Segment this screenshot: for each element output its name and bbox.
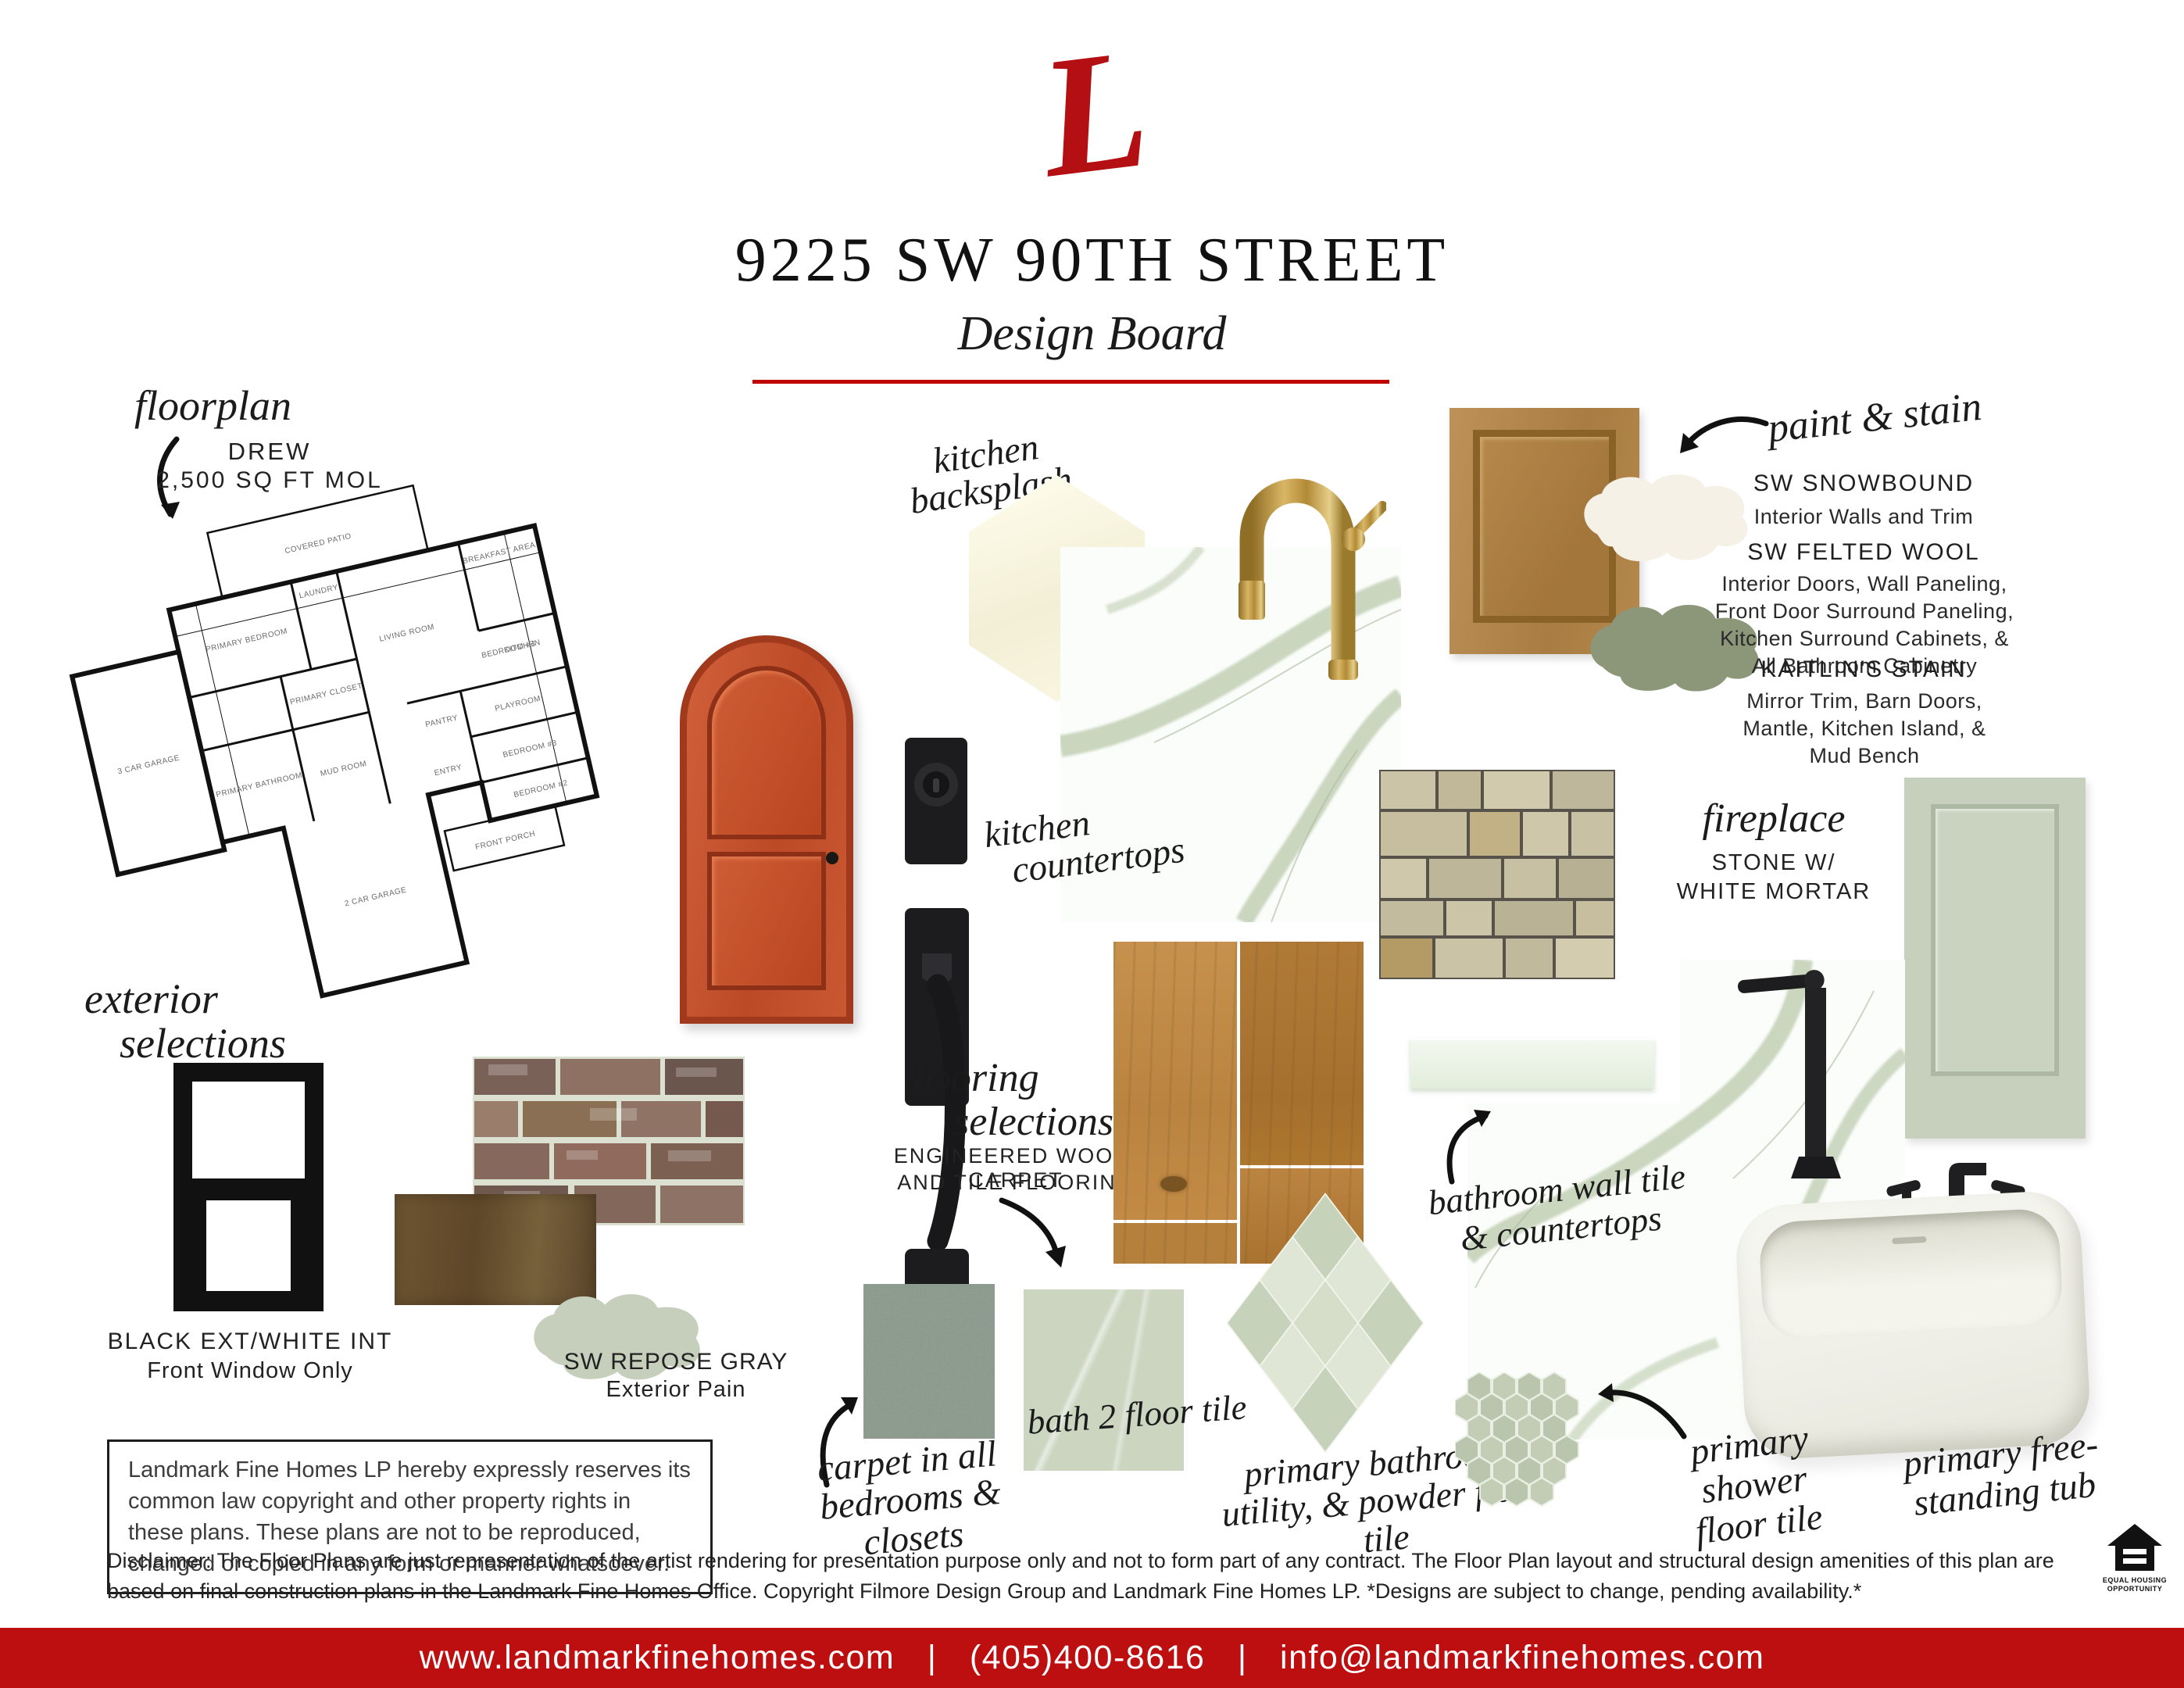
window-upper-pane (192, 1082, 305, 1178)
flooring-arrow-icon (994, 1194, 1071, 1271)
green-door-panel-image (1904, 778, 2086, 1139)
room-label: LIVING ROOM (378, 623, 435, 644)
paint-item-desc: Interior Walls and Trim (1707, 503, 2020, 531)
door-knob-icon (826, 852, 838, 864)
room-label: PRIMARY BATHROOM (215, 771, 303, 799)
fireplace-desc-line1: STONE W/ (1680, 850, 1868, 876)
footer-email: info@landmarkfinehomes.com (1280, 1639, 1764, 1676)
paint-item-name: SW FELTED WOOL (1707, 539, 2020, 566)
tub-basin (1758, 1207, 2064, 1340)
flooring-label-line1: flooring (908, 1057, 1113, 1100)
footer-bar: www.landmarkfinehomes.com | (405)400-861… (0, 1628, 2184, 1688)
room-label: 3 CAR GARAGE (117, 754, 181, 777)
eho-text-line1: EQUAL HOUSING (2099, 1576, 2171, 1585)
flooring-label-line2: selections (908, 1100, 1113, 1144)
black-bath-faucet-image (1736, 961, 1846, 1189)
room-label: PANTRY (424, 713, 459, 729)
equal-housing-logo: EQUAL HOUSING OPPORTUNITY (2099, 1522, 2171, 1593)
exterior-label-line2: selections (84, 1021, 286, 1066)
fireplace-label: fireplace (1680, 796, 1868, 842)
room-label: BEDROOM #3 (502, 738, 558, 760)
title-divider (752, 380, 1389, 384)
floorplan-drawing: COVERED PATIO BREAKFAST AREA LIVING ROOM… (63, 481, 656, 1000)
floorplan-plan-name: DREW (180, 438, 359, 466)
paint-item-name: KAITLIN'S STAIN (1707, 656, 2020, 683)
floorplan-label: floorplan (134, 381, 291, 430)
shower-mosaic-sample-image (1455, 1372, 1588, 1510)
window-sample-image (173, 1063, 323, 1311)
window-lower-pane (206, 1200, 291, 1291)
room-label: BEDROOM #4 (481, 639, 536, 660)
room-label: BEDROOM #2 (513, 779, 568, 800)
brand-logo-letter: L (1004, 5, 1183, 220)
design-board: L 9225 SW 90TH STREET Design Board floor… (0, 0, 2184, 1688)
paint-item-name: SW SNOWBOUND (1707, 470, 2020, 497)
repose-gray-name: SW REPOSE GRAY (559, 1349, 793, 1375)
window-name: BLACK EXT/WHITE INT (74, 1329, 426, 1355)
eho-text-line2: OPPORTUNITY (2099, 1585, 2171, 1593)
shower-arrow-icon (1598, 1380, 1689, 1443)
room-label: MUD ROOM (320, 760, 368, 778)
repose-gray-desc: Exterior Pain (559, 1377, 793, 1403)
footer-website: www.landmarkfinehomes.com (420, 1639, 895, 1676)
room-label: ENTRY (434, 763, 463, 778)
equal-housing-house-icon (2106, 1522, 2164, 1572)
paint-item-desc: Mirror Trim, Barn Doors, Mantle, Kitchen… (1719, 688, 2010, 770)
primary-floor-tile-sample-image (1225, 1192, 1425, 1454)
room-label: PRIMARY CLOSET (289, 681, 363, 706)
paint-stain-arrow-icon (1677, 416, 1771, 463)
exterior-selections-label: exterior selections (84, 977, 286, 1065)
room-label: 2 CAR GARAGE (344, 886, 407, 909)
paint-stain-label: paint & stain (1766, 384, 1984, 452)
room-label: PRIMARY BEDROOM (205, 627, 288, 654)
fireplace-desc-line2: WHITE MORTAR (1664, 879, 1883, 905)
disclaimer-text: Disclaimer: The Floor Plans are just rep… (107, 1546, 2096, 1607)
deadbolt-hardware-image (903, 736, 970, 867)
green-door-inner-panel (1931, 804, 2059, 1076)
door-bottom-panel (707, 852, 826, 990)
room-label: PLAYROOM (494, 695, 542, 713)
room-label: LAUNDRY (298, 583, 339, 600)
page-subtitle: Design Board (0, 306, 2184, 362)
exterior-label-line1: exterior (84, 977, 286, 1021)
room-label: COVERED PATIO (284, 532, 352, 556)
footer-separator: | (1238, 1639, 1248, 1676)
front-door-image (680, 635, 853, 1024)
fireplace-stone-sample-image (1379, 770, 1615, 979)
door-top-panel (707, 666, 826, 839)
carpet-sample-image (863, 1284, 995, 1439)
bath2-tile-sample-image (1024, 1289, 1184, 1471)
window-desc: Front Window Only (74, 1358, 426, 1384)
room-label: FRONT PORCH (474, 830, 536, 852)
footer-phone: (405)400-8616 (970, 1639, 1206, 1676)
footer-separator: | (928, 1639, 938, 1676)
flooring-selections-label: flooring selections (908, 1057, 1113, 1144)
gold-faucet-image (1216, 428, 1386, 682)
page-title: 9225 SW 90TH STREET (0, 225, 2184, 296)
bathroom-wall-arrow-icon (1442, 1110, 1499, 1185)
